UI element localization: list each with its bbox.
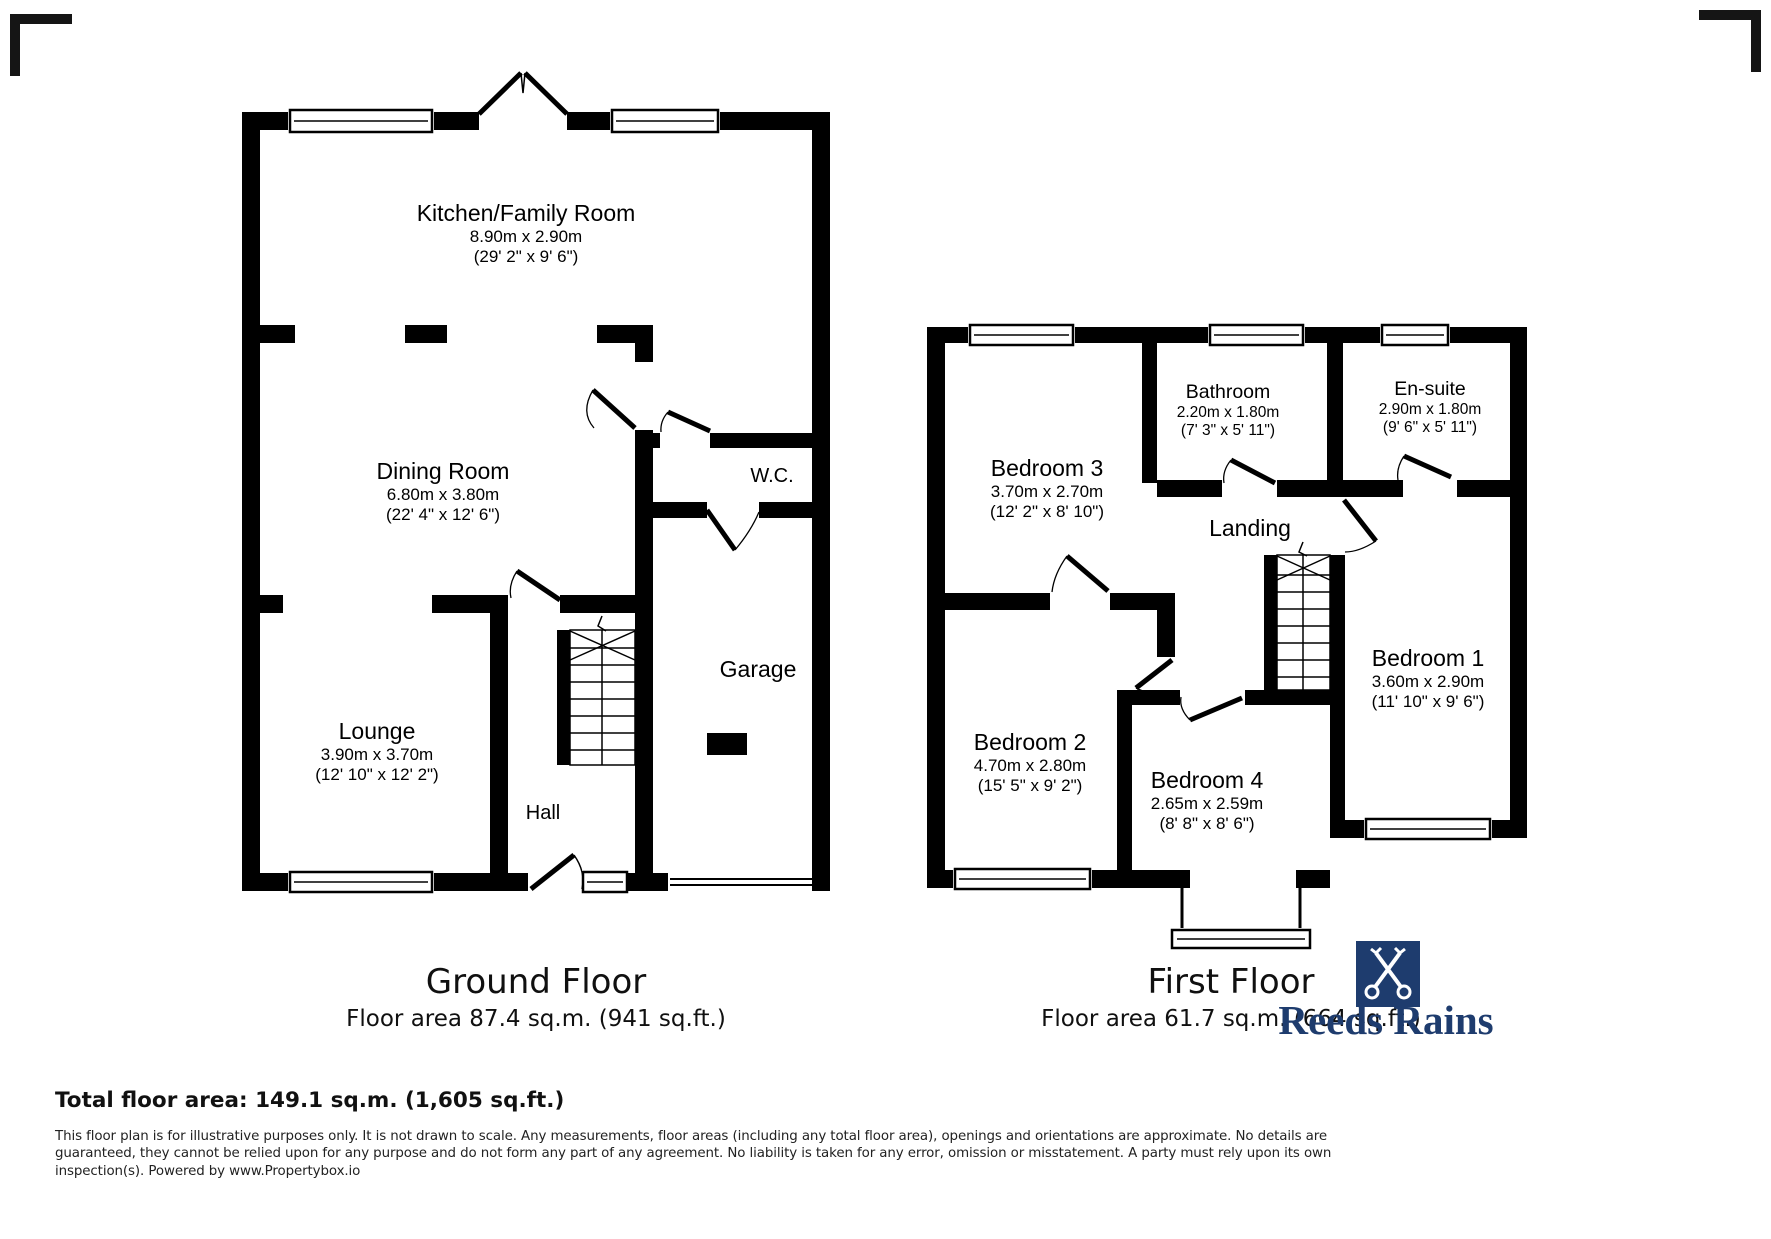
room-label-landing: Landing: [1209, 515, 1291, 542]
first-window-bed1: [1364, 817, 1492, 841]
first-door-bed2: [1136, 660, 1172, 694]
room-label-hall: Hall: [526, 802, 560, 826]
ground-door-lounge: [510, 571, 560, 600]
ground-floor-area: Floor area 87.4 sq.m. (941 sq.ft.): [346, 1006, 726, 1032]
first-door-bed4: [1181, 697, 1242, 720]
first-window-bed3: [968, 324, 1075, 346]
ground-window-lounge: [288, 870, 434, 894]
disclaimer-text: This floor plan is for illustrative purp…: [55, 1128, 1355, 1180]
first-window-bathroom: [1208, 324, 1305, 346]
brand-wordmark: Reeds Rains: [1278, 996, 1493, 1044]
room-label-kitchen: Kitchen/Family Room 8.90m x 2.90m (29' 2…: [417, 200, 636, 267]
ground-staircase: [570, 616, 635, 765]
first-staircase: [1277, 542, 1330, 690]
floorplan-page: Kitchen/Family Room 8.90m x 2.90m (29' 2…: [0, 0, 1771, 1239]
ground-window-top-left: [288, 108, 434, 134]
first-door-bed1: [1344, 500, 1376, 552]
room-label-lounge: Lounge 3.90m x 3.70m (12' 10" x 12' 2"): [315, 718, 438, 785]
room-label-bedroom1: Bedroom 1 3.60m x 2.90m (11' 10" x 9' 6"…: [1372, 645, 1485, 712]
room-label-bedroom2: Bedroom 2 4.70m x 2.80m (15' 5" x 9' 2"): [974, 729, 1087, 796]
first-bay-window: [1170, 888, 1312, 950]
first-window-ensuite: [1380, 324, 1450, 346]
first-window-bed2: [953, 867, 1092, 891]
room-label-ensuite: En-suite 2.90m x 1.80m (9' 6" x 5' 11"): [1379, 378, 1482, 438]
ground-window-top-right: [610, 108, 720, 134]
ground-window-hall: [582, 870, 668, 894]
room-label-bedroom4: Bedroom 4 2.65m x 2.59m (8' 8" x 8' 6"): [1151, 767, 1264, 834]
total-floor-area: Total floor area: 149.1 sq.m. (1,605 sq.…: [55, 1088, 564, 1113]
first-door-bathroom: [1224, 460, 1275, 483]
ground-door-wc: [661, 412, 759, 550]
crop-mark-top-left-v: [10, 14, 20, 76]
first-door-bed3: [1052, 556, 1108, 592]
room-label-bathroom: Bathroom 2.20m x 1.80m (7' 3" x 5' 11"): [1177, 381, 1280, 441]
room-label-bedroom3: Bedroom 3 3.70m x 2.70m (12' 2" x 8' 10"…: [990, 455, 1104, 522]
room-label-garage: Garage: [720, 656, 797, 683]
room-label-dining: Dining Room 6.80m x 3.80m (22' 4" x 12' …: [377, 458, 510, 525]
ground-door-dining-lobby: [587, 390, 635, 428]
ground-front-door: [528, 855, 583, 891]
first-door-ensuite: [1398, 456, 1451, 480]
ground-patio-doors: [470, 73, 576, 133]
room-label-wc: W.C.: [750, 465, 793, 489]
ground-garage-door: [668, 873, 812, 891]
ground-floor-title: Ground Floor: [426, 962, 646, 1002]
crop-mark-top-right-v: [1751, 10, 1761, 72]
